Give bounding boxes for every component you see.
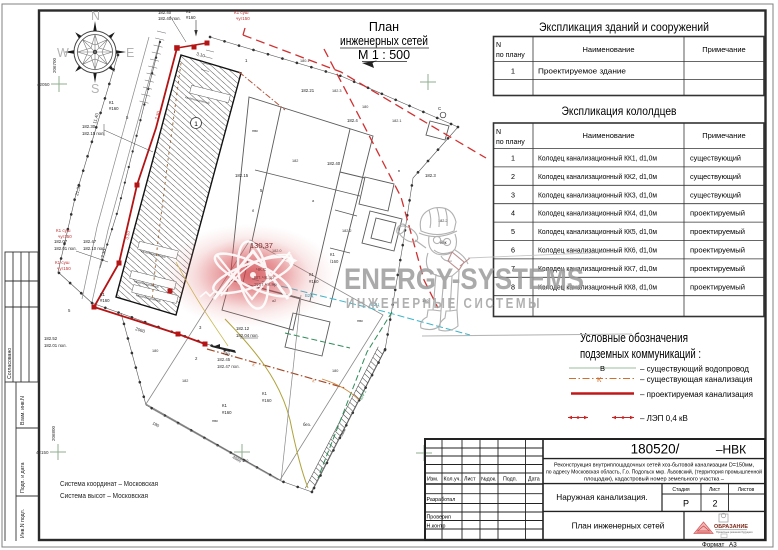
svg-text:чуг150: чуг150 (57, 266, 71, 271)
svg-text:180.1: 180.1 (300, 59, 310, 63)
svg-text:–НВК: –НВК (716, 443, 746, 457)
svg-text:К1: К1 (262, 391, 268, 396)
svg-text:проектируемый: проектируемый (690, 282, 745, 291)
svg-text:180: 180 (362, 105, 368, 109)
svg-text:Колодец канализационный КК5, d: Колодец канализационный КК5, d1,0м (538, 227, 657, 236)
svg-text:Кол.уч.: Кол.уч. (444, 477, 461, 483)
svg-text:нвк: нвк (212, 419, 218, 423)
svg-text:Колодец канализационный КК2, d: Колодец канализационный КК2, d1,0м (538, 172, 657, 181)
svg-text:N: N (496, 129, 501, 136)
svg-text:182.45: 182.45 (217, 357, 231, 362)
svg-text:Н.контр: Н.контр (427, 524, 446, 530)
svg-text:W: W (57, 46, 69, 60)
svg-text:Лист: Лист (709, 487, 721, 493)
svg-text:без.: без. (303, 422, 311, 427)
svg-text:площадки), кадастровый номер з: площадки), кадастровый номер земельного … (584, 476, 724, 483)
svg-text:Разработал: Разработал (427, 497, 456, 503)
svg-text:К1: К1 (186, 9, 192, 14)
svg-text:182.2: 182.2 (342, 229, 352, 233)
svg-text:М 1 : 500: М 1 : 500 (358, 48, 410, 62)
svg-text:180: 180 (242, 459, 248, 463)
svg-text:182.52: 182.52 (44, 336, 58, 341)
svg-text:Формат: Формат (702, 542, 724, 549)
svg-text:чуг150: чуг150 (236, 16, 250, 21)
svg-text:182.4: 182.4 (347, 118, 358, 123)
svg-text:Проектные решения будущего: Проектные решения будущего (716, 530, 753, 534)
svg-text:Колодец канализационный КК1, d: Колодец канализационный КК1, d1,0м (538, 154, 657, 163)
svg-text:инженерных сетей: инженерных сетей (340, 34, 428, 48)
svg-text:Проверил: Проверил (427, 515, 451, 521)
svg-text:182.04 пол.: 182.04 пол. (236, 333, 259, 338)
svg-text:E: E (126, 46, 134, 60)
svg-text:1: 1 (511, 154, 515, 163)
svg-text:#160: #160 (100, 298, 110, 303)
svg-text:– существующая канализация: – существующая канализация (640, 375, 753, 384)
svg-text:Согласовано: Согласовано (7, 348, 13, 379)
svg-text:ОБРАЗАНИЕ: ОБРАЗАНИЕ (714, 524, 748, 530)
svg-text:ENERGY-SYSTEMS: ENERGY-SYSTEMS (344, 263, 584, 296)
svg-text:206700: 206700 (52, 57, 57, 73)
svg-text:N: N (496, 42, 501, 49)
svg-text:Примечание: Примечание (702, 131, 745, 140)
svg-text:Колодец канализационный КК3, d: Колодец канализационный КК3, d1,0м (538, 190, 657, 199)
svg-text:План инженерных сетей: План инженерных сетей (572, 522, 665, 531)
svg-text:К1 суш: К1 суш (234, 10, 249, 15)
svg-text:#160: #160 (186, 15, 196, 20)
svg-text:Условные обозначения: Условные обозначения (580, 331, 688, 345)
svg-text:182.07: 182.07 (54, 239, 68, 244)
svg-text:по плану: по плану (496, 139, 525, 146)
svg-text:Экспликация кололдцев: Экспликация кололдцев (562, 104, 677, 118)
svg-text:№док.: №док. (481, 477, 497, 483)
svg-text:Изм.: Изм. (427, 477, 438, 483)
svg-text:182: 182 (182, 379, 188, 383)
svg-text:по адресу Московская область,: по адресу Московская область, Г.о. Подол… (546, 469, 762, 476)
svg-text:Колодец канализационный КК4, d: Колодец канализационный КК4, d1,0м (538, 209, 657, 218)
svg-text:К1: К1 (100, 292, 106, 297)
svg-text:Система высот – Московская: Система высот – Московская (60, 491, 148, 500)
svg-text:Экспликация зданий и сооружени: Экспликация зданий и сооружений (539, 20, 709, 34)
svg-text:проектируемый: проектируемый (690, 227, 745, 236)
svg-text:N: N (91, 9, 100, 23)
svg-text:А3: А3 (729, 542, 737, 549)
svg-text:Инв.N подл.: Инв.N подл. (20, 509, 26, 538)
svg-text:ИНЖЕНЕРНЫЕ СИСТЕМЫ: ИНЖЕНЕРНЫЕ СИСТЕМЫ (346, 296, 542, 312)
svg-text:существующий: существующий (690, 190, 741, 199)
svg-text:182.3: 182.3 (425, 173, 436, 178)
svg-text:ВП.ЧК.пр: ВП.ЧК.пр (254, 275, 274, 280)
svg-text:Взам. инв.N: Взам. инв.N (20, 396, 26, 425)
svg-text:проектируемый: проектируемый (690, 246, 745, 255)
svg-text:182.30: 182.30 (82, 124, 96, 129)
svg-text:К1 суш: К1 суш (55, 260, 70, 265)
svg-text:нвк: нвк (252, 129, 258, 133)
svg-text:подземных коммуникаций :: подземных коммуникаций : (580, 347, 701, 361)
svg-text:6: 6 (511, 246, 515, 255)
svg-text:#160: #160 (109, 106, 119, 111)
svg-text:42150: 42150 (36, 450, 49, 455)
svg-text:130,37: 130,37 (250, 241, 273, 250)
svg-text:существующий: существующий (690, 154, 741, 163)
svg-text:#160: #160 (262, 398, 272, 403)
svg-text:Наружная канализация.: Наружная канализация. (556, 493, 647, 502)
svg-text:182.1: 182.1 (392, 119, 402, 123)
svg-text:Листов: Листов (738, 487, 755, 493)
svg-text:1: 1 (194, 121, 198, 128)
svg-text:S: S (91, 82, 99, 96)
svg-text:К1 суш: К1 суш (56, 228, 71, 233)
svg-text:Стадия: Стадия (672, 487, 690, 493)
svg-text:по плану: по плану (496, 52, 525, 59)
svg-text:182.15 пол.: 182.15 пол. (82, 131, 105, 136)
svg-text:180: 180 (332, 369, 338, 373)
svg-text:проектируемый: проектируемый (690, 209, 745, 218)
svg-text:ЗИП.ЧК.пр: ЗИП.ЧК.пр (254, 282, 277, 287)
svg-text:План: План (369, 20, 399, 34)
svg-text:Подп.: Подп. (503, 477, 517, 483)
svg-text:К1: К1 (330, 252, 336, 257)
svg-text:180: 180 (152, 349, 158, 353)
svg-text:4: 4 (511, 209, 515, 218)
svg-text:К1: К1 (222, 403, 228, 408)
svg-text:Подп. и дата: Подп. и дата (20, 462, 26, 493)
svg-text:– существующий водопровод: – существующий водопровод (640, 365, 749, 374)
svg-text:чуг150: чуг150 (58, 234, 72, 239)
svg-text:К1: К1 (109, 100, 115, 105)
svg-text:Лист: Лист (464, 477, 476, 483)
svg-text:– проектируемая канализация: – проектируемая канализация (640, 390, 753, 399)
svg-text:1: 1 (511, 67, 515, 76)
svg-text:2: 2 (712, 499, 717, 509)
svg-text:существующий: существующий (690, 172, 741, 181)
svg-text:182.01 пол.: 182.01 пол. (44, 343, 67, 348)
svg-text:– ЛЭП 0,4 кВ: – ЛЭП 0,4 кВ (640, 414, 688, 423)
svg-text:В: В (600, 364, 605, 373)
svg-text:3: 3 (511, 190, 515, 199)
svg-text:182.21: 182.21 (301, 88, 315, 93)
svg-text:180520/: 180520/ (631, 442, 680, 457)
svg-text:182.40 пол.: 182.40 пол. (158, 16, 181, 21)
svg-text:Колодец канализационный КК6, d: Колодец канализационный КК6, d1,0м (538, 246, 657, 255)
svg-text:Наименование: Наименование (583, 45, 635, 54)
svg-text:Р: Р (683, 499, 689, 509)
svg-text:182.40: 182.40 (327, 161, 341, 166)
svg-text:#160: #160 (222, 410, 232, 415)
svg-text:Примечание: Примечание (702, 45, 745, 54)
svg-text:182.15: 182.15 (235, 173, 249, 178)
svg-text:2: 2 (511, 172, 515, 181)
svg-text:в: в (398, 169, 400, 173)
svg-text:Наименование: Наименование (583, 131, 635, 140)
svg-text:ЧК.С: ЧК.С (256, 267, 267, 272)
svg-text:Система координат – Московская: Система координат – Московская (60, 479, 158, 488)
svg-text:проектируемый: проектируемый (690, 264, 745, 273)
svg-text:182.47 пол.: 182.47 пол. (217, 364, 240, 369)
svg-text:нвк: нвк (357, 319, 363, 323)
svg-text:Дата: Дата (528, 477, 540, 483)
svg-text:182.40: 182.40 (158, 10, 172, 15)
svg-text:Реконструкция внутриплощадочны: Реконструкция внутриплощадочных сетей хо… (554, 462, 754, 469)
svg-text:К: К (597, 375, 602, 384)
svg-text:5: 5 (511, 227, 515, 236)
svg-text:206800: 206800 (51, 425, 56, 441)
svg-text:42050: 42050 (37, 82, 50, 87)
svg-text:Проектируемое здание: Проектируемое здание (538, 67, 626, 76)
svg-text:182.3: 182.3 (332, 89, 342, 93)
svg-text:182: 182 (292, 159, 298, 163)
svg-text:182.01 пол.: 182.01 пол. (54, 246, 77, 251)
svg-text:182.47: 182.47 (83, 239, 97, 244)
